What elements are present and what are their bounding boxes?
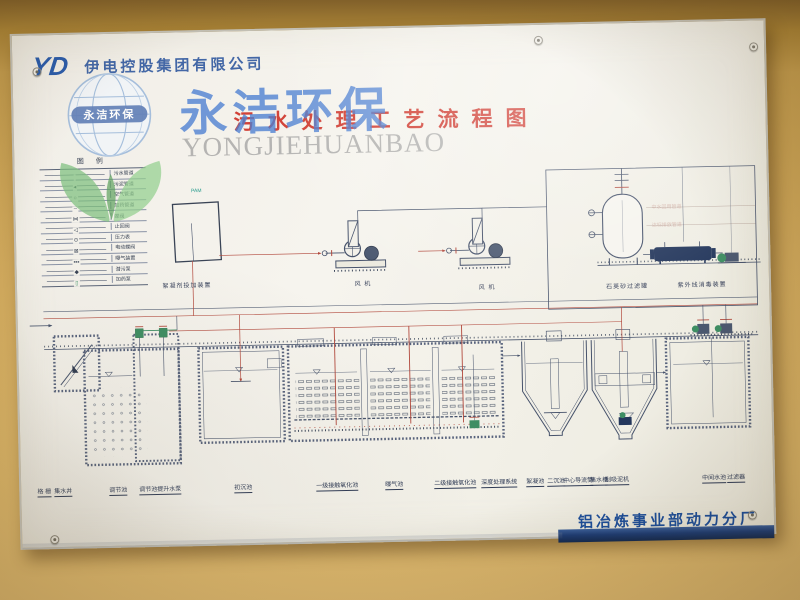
primary-settling-tank [198,314,285,443]
tank-label-lift-pumps: 调节池提升水泵 [139,483,181,495]
air-blower-2 [446,217,512,268]
legend-label: 压力表 [111,233,147,241]
tank-label-aeration: 曝气池 [385,479,403,490]
whiteboard-poster: YD 伊电控股集团有限公司 污水处理工艺流程图 永洁环保 永洁环保 YONGJI… [10,18,777,550]
tank-label-filter: 过滤器 [727,472,745,483]
tank-label-sludge-scraper: 刮吸泥机 [605,474,629,486]
photo-of-flow-diagram-poster: { "header": { "logo_text": "YD", "compan… [0,0,800,600]
flocculant-dosing-device [172,202,221,262]
tank-label-advanced-treatment: 深度处理系统 [481,476,517,488]
legend-label: 污水管道 [110,169,146,177]
legend-label: 污泥管道 [110,180,146,188]
logo-text: YD [32,51,70,82]
legend-box: 图 例 污水管道 ◂污泥管道 ○空气管道 ┄加药管道 ⋈蝶阀 ◁止回阀 ⊙压力表… [39,155,148,287]
tank-label-primary-settling: 初沉池 [234,482,252,493]
sand-filter-vessel [588,168,644,266]
tank-label-sump-well: 集水井 [54,486,72,497]
tank-label-oxidation-2: 二级接触氧化池 [434,477,476,489]
main-pipe-runs [29,297,757,334]
air-blower-1 [322,220,388,271]
legend-label: 蝶阀 [110,212,146,220]
plant-name: 铝冶炼事业部动力分厂 [578,507,758,532]
blower-1-label: 风 机 [333,278,393,288]
legend-table: 污水管道 ◂污泥管道 ○空气管道 ┄加药管道 ⋈蝶阀 ◁止回阀 ⊙压力表 ⊠电动… [40,167,148,287]
tank-label-equalization: 调节池 [109,485,127,496]
legend-label: 电动蝶阀 [111,244,147,252]
bar-screen-channel [54,336,100,392]
tank-label-bar-screen: 格 栅 [37,486,51,497]
dosing-tag: PAM [191,188,202,194]
intermediate-water-tank [665,304,754,428]
uv-unit-label: 紫外线消毒装置 [657,279,747,290]
tank-label-intermediate-tank: 中间水池 [702,472,726,484]
company-logo-icon: YD [32,49,81,84]
flocculation-clarifier [521,330,588,436]
legend-label: 空气管道 [110,191,146,199]
tank-label-center-draft-tube: 中心导流筒 [563,475,593,487]
tank-label-flocculation: 絮凝池 [526,476,544,487]
pipe-note-reuse: 中水回用管道 [651,203,681,211]
company-name: 伊电控股集团有限公司 [84,53,264,78]
reuse-water-pump [717,252,746,263]
dosing-pump-symbol-icon: ▯ [42,271,112,290]
legend-label: 止回阀 [111,222,147,230]
legend-label: 潜污泵 [112,265,148,273]
tank-label-oxidation-1: 一级接触氧化池 [316,480,358,492]
legend-label: 曝气装置 [111,254,147,262]
legend-row-dosing-pump: ▯加药泵 [42,274,148,286]
pipe-note-discharge: 达标排放管道 [652,221,682,229]
secondary-clarifier [590,306,666,440]
poster-title: 污水处理工艺流程图 [233,102,539,136]
blower-2-label: 风 机 [457,281,517,291]
legend-label: 加药管道 [110,201,146,209]
